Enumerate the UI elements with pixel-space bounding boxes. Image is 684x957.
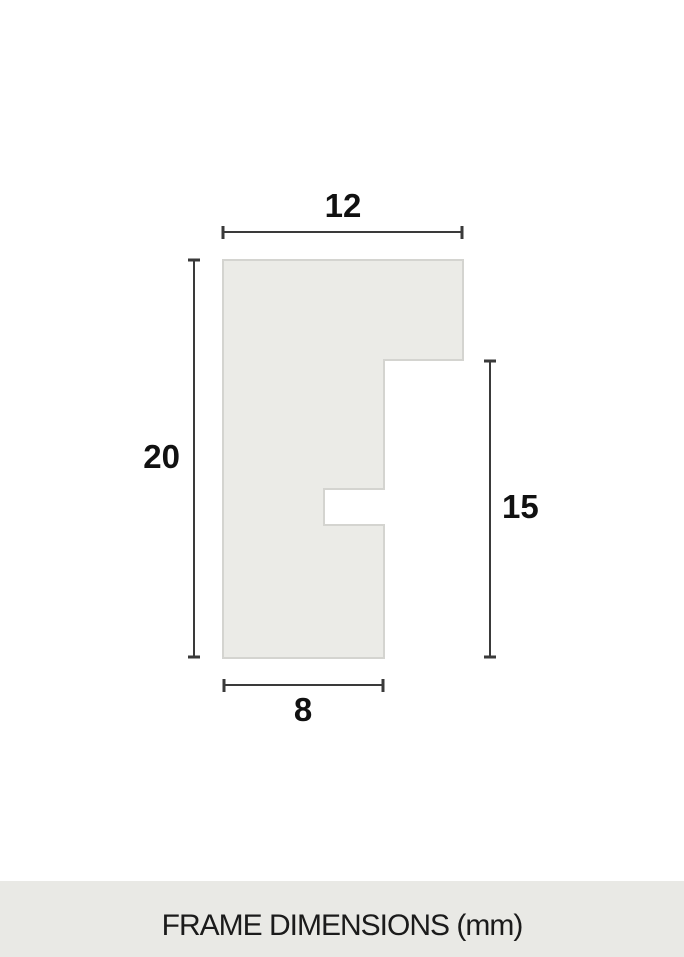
frame-dimensions-page: 12 20 15 8 FRAME DIMENSIONS (mm) bbox=[0, 0, 684, 957]
dimension-line-right bbox=[484, 361, 496, 657]
footer-title: FRAME DIMENSIONS (mm) bbox=[162, 911, 523, 941]
profile-polygon bbox=[223, 260, 463, 658]
dimension-label-left-height: 20 bbox=[80, 440, 180, 473]
dimension-label-top-width: 12 bbox=[263, 189, 423, 222]
dimension-label-bottom-width: 8 bbox=[223, 693, 383, 726]
dimension-line-top bbox=[223, 226, 462, 239]
frame-profile-shape bbox=[223, 260, 463, 658]
dimension-label-right-height: 15 bbox=[502, 490, 539, 523]
dimension-line-left bbox=[188, 260, 200, 657]
frame-profile-diagram: 12 20 15 8 bbox=[0, 0, 684, 881]
footer-bar: FRAME DIMENSIONS (mm) bbox=[0, 881, 684, 957]
